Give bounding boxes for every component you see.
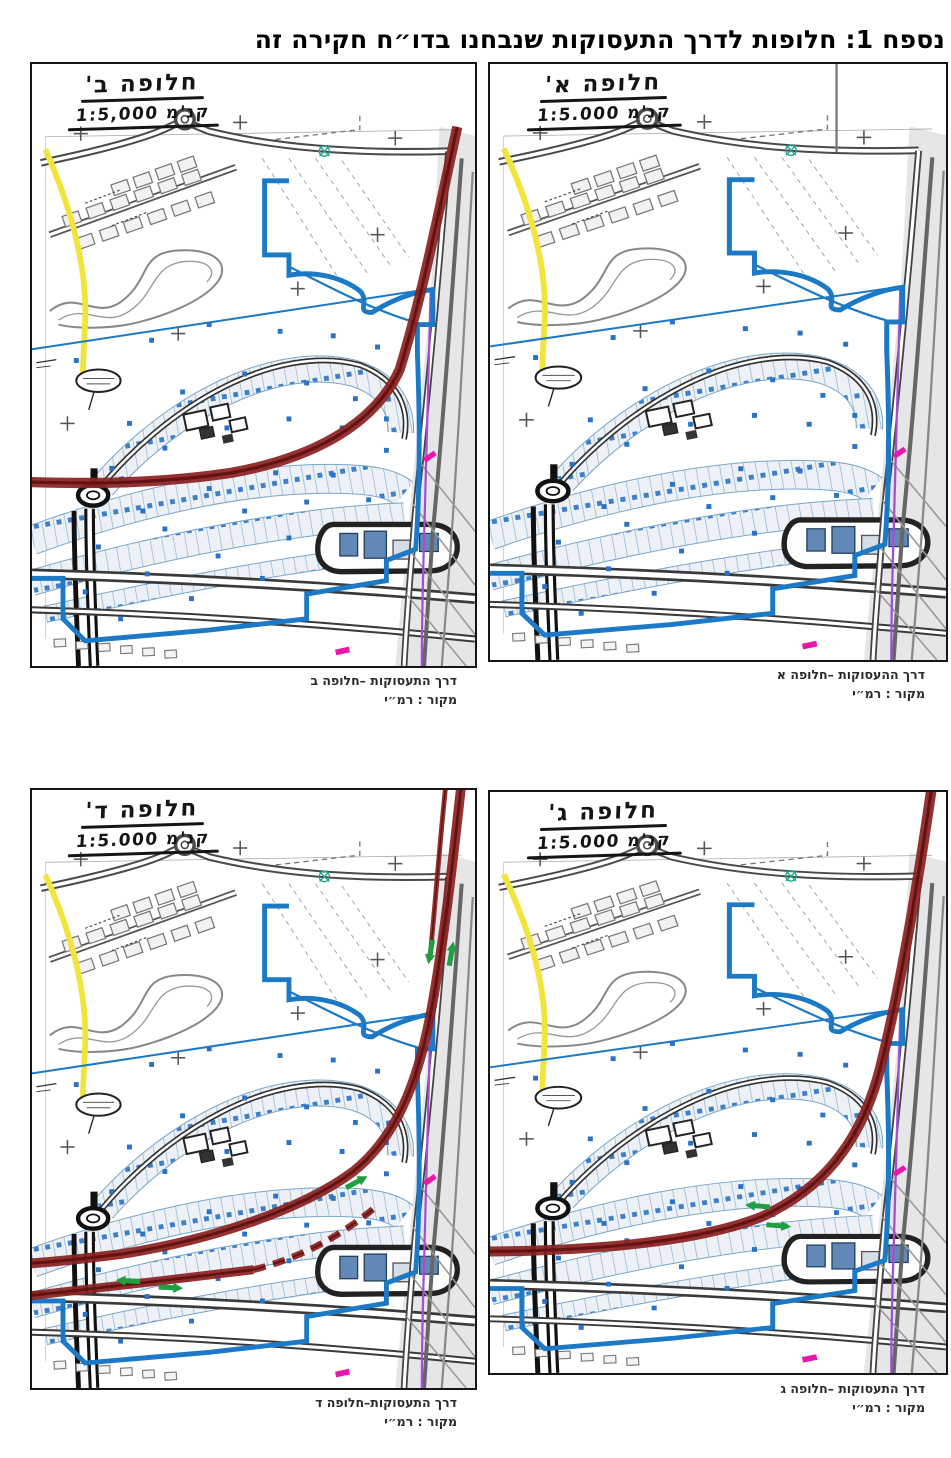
handwritten-scale: קנ'מ 1:5.000 [526,102,682,127]
handwritten-label-alt-a: חלופה א' קנ'מ 1:5.000 [526,69,683,132]
caption-line1: דרך התעסוקות –חלופה ג [488,1380,925,1399]
report-page: נספח 1: חלופות לדרך התעסוקות שנבחנו בדו״… [0,0,951,1458]
map-panel-alt-a: חלופה א' קנ'מ 1:5.000 [488,62,948,662]
map-panel-alt-c: חלופה ג' קנ'מ 1:5.000 [488,790,948,1375]
handwritten-label-alt-d: חלופה ד' קנ'מ 1:5.000 [67,795,219,858]
caption-alt-d: דרך התעסוקות–חלופה ד מקור : רמ״י [30,1394,477,1432]
caption-source: מקור : רמ״י [488,1399,925,1418]
handwritten-title: חלופה ג' [526,797,682,828]
caption-line1: דרך ההעסוקות –חלופה א [488,666,925,685]
handwritten-scale: קנ'מ 1:5.000 [67,828,219,853]
caption-alt-c: דרך התעסוקות –חלופה ג מקור : רמ״י [488,1380,948,1418]
handwritten-title: חלופה ב' [66,69,218,100]
map-panel-alt-d: חלופה ד' קנ'מ 1:5.000 [30,788,477,1390]
map-drawing-alt-a [490,64,946,660]
caption-source: מקור : רמ״י [488,685,925,704]
caption-source: מקור : רמ״י [30,691,457,710]
handwritten-title: חלופה ד' [66,795,218,826]
caption-line1: דרך התעסוקות–חלופה ד [30,1394,457,1413]
handwritten-title: חלופה א' [526,69,682,100]
map-drawing-alt-d [32,790,475,1388]
handwritten-label-alt-b: חלופה ב' קנ'מ 1:5,000 [67,69,219,132]
map-drawing-alt-b [32,64,475,666]
map-panel-alt-b: חלופה ב' קנ'מ 1:5,000 [30,62,477,668]
handwritten-scale: קנ'מ 1:5,000 [67,102,219,127]
caption-line1: דרך התעסוקות –חלופה ב [30,672,457,691]
page-title: נספח 1: חלופות לדרך התעסוקות שנבחנו בדו״… [6,25,945,54]
caption-alt-a: דרך ההעסוקות –חלופה א מקור : רמ״י [488,666,948,704]
handwritten-label-alt-c: חלופה ג' קנ'מ 1:5.000 [526,797,683,860]
map-drawing-alt-c [490,792,946,1373]
caption-source: מקור : רמ״י [30,1413,457,1432]
handwritten-scale: קנ'מ 1:5.000 [526,829,682,854]
caption-alt-b: דרך התעסוקות –חלופה ב מקור : רמ״י [30,672,477,710]
